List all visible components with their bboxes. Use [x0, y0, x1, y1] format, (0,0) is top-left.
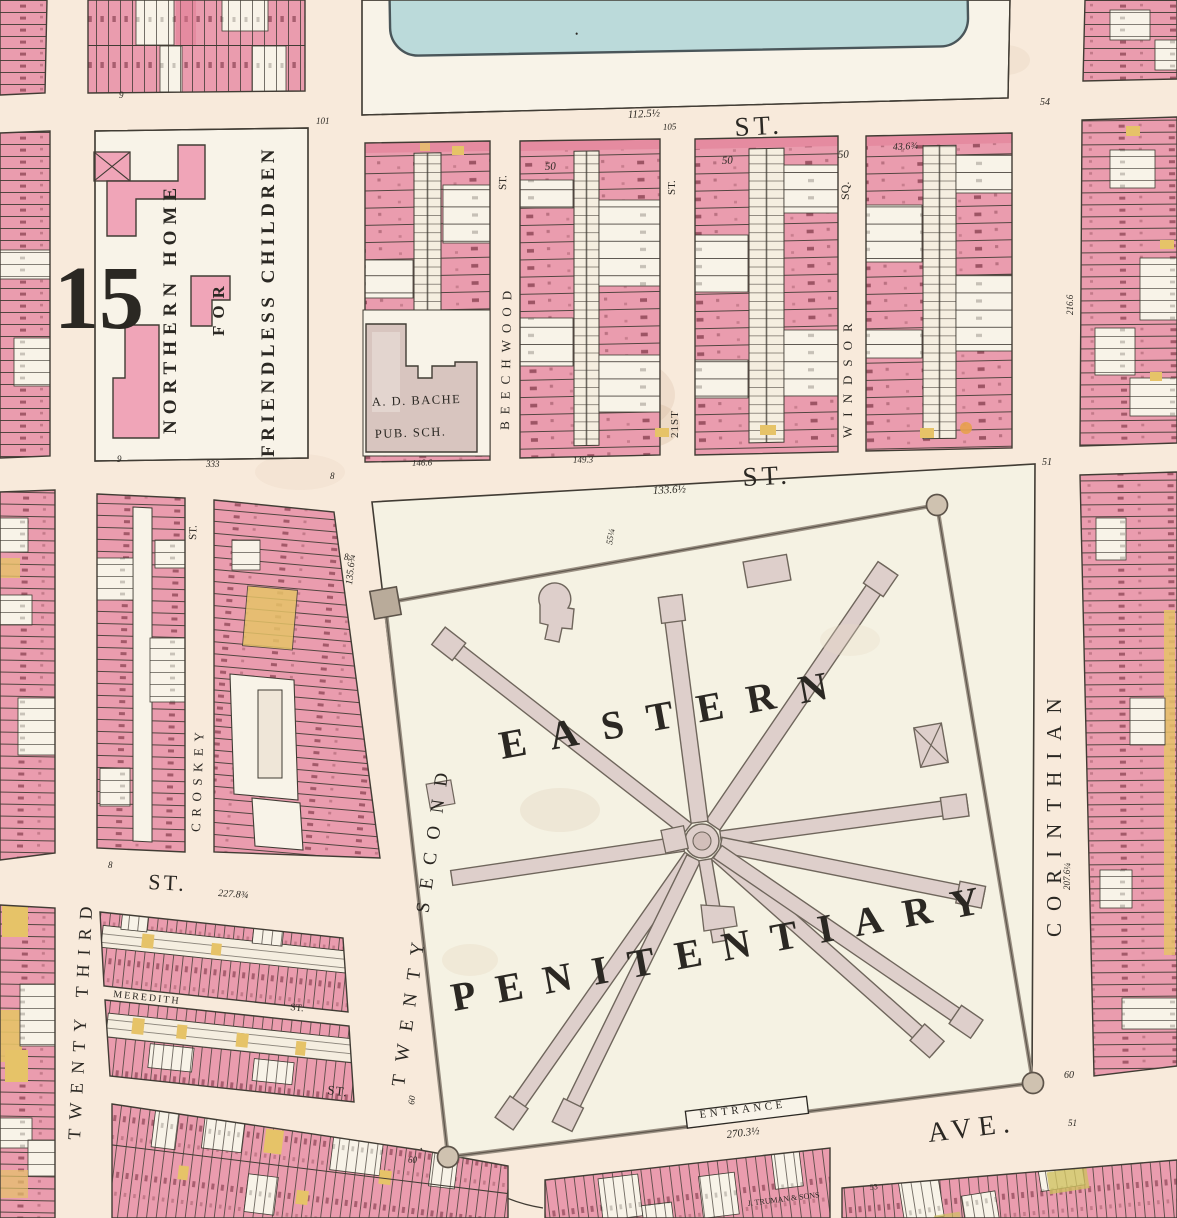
svg-text:15: 15	[54, 249, 144, 348]
svg-text:216.6: 216.6	[1065, 294, 1075, 315]
svg-text:51: 51	[1068, 1118, 1077, 1128]
svg-text:9: 9	[119, 90, 124, 100]
svg-text:21ST: 21ST	[669, 410, 681, 438]
svg-text:BEECHWOOD: BEECHWOOD	[497, 284, 515, 430]
svg-text:50: 50	[838, 148, 850, 161]
svg-text:60: 60	[1064, 1070, 1074, 1081]
svg-text:60: 60	[408, 1155, 418, 1165]
svg-text:WINDSOR: WINDSOR	[840, 314, 855, 438]
svg-text:8: 8	[108, 860, 113, 870]
svg-text:8: 8	[330, 471, 335, 481]
svg-text:333: 333	[205, 459, 220, 469]
svg-text:ST.: ST.	[148, 869, 188, 896]
svg-text:CORINTHIAN: CORINTHIAN	[1042, 686, 1066, 937]
svg-text:9: 9	[117, 454, 122, 464]
svg-text:101: 101	[316, 116, 330, 126]
svg-text:146.6: 146.6	[412, 457, 433, 468]
svg-text:50: 50	[722, 154, 734, 167]
svg-text:43.6¾: 43.6¾	[893, 141, 919, 153]
svg-text:54: 54	[1040, 97, 1050, 108]
svg-text:ST.: ST.	[742, 460, 792, 492]
svg-text:ST.: ST.	[734, 110, 784, 142]
svg-text:50: 50	[545, 160, 557, 173]
svg-text:FRIENDLESS CHILDREN: FRIENDLESS CHILDREN	[258, 145, 279, 457]
svg-text:149.3: 149.3	[573, 454, 594, 465]
svg-text:105: 105	[663, 121, 678, 132]
svg-text:ST.: ST.	[290, 1002, 305, 1014]
svg-text:227.8¾: 227.8¾	[218, 888, 249, 901]
svg-text:FOR: FOR	[209, 279, 228, 336]
svg-text:ST.: ST.	[327, 1082, 349, 1099]
svg-text:PUB. SCH.: PUB. SCH.	[375, 425, 447, 441]
svg-text:51: 51	[1042, 457, 1052, 468]
svg-text:NORTHERN HOME: NORTHERN HOME	[160, 182, 181, 434]
svg-text:SQ.: SQ.	[838, 182, 852, 200]
svg-text:112.5½: 112.5½	[628, 107, 661, 121]
svg-text:•: •	[575, 29, 578, 39]
svg-text:ST.: ST.	[187, 525, 200, 540]
svg-text:ST.: ST.	[666, 180, 678, 195]
svg-text:133.6½: 133.6½	[653, 483, 687, 497]
svg-text:53: 53	[869, 1182, 878, 1192]
svg-text:ST.: ST.	[497, 175, 509, 190]
